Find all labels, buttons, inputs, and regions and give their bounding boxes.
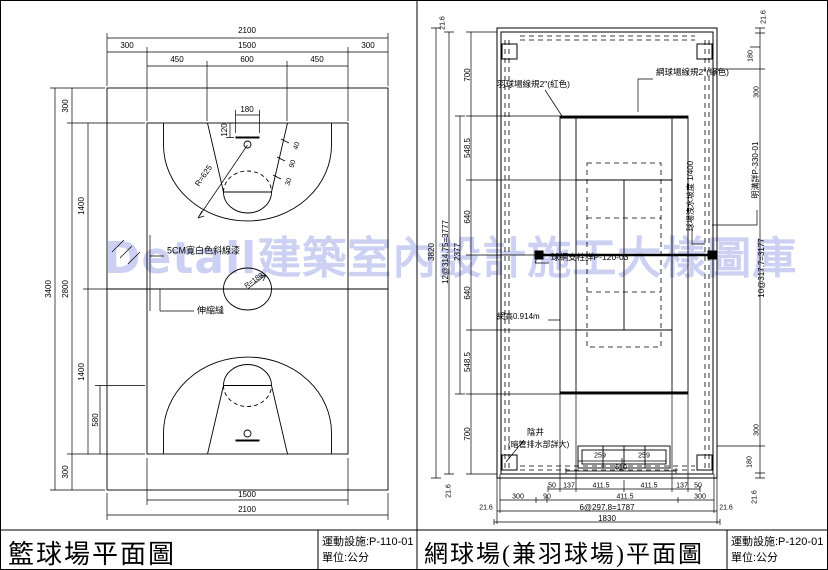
dim-side-top: 300 [754,86,761,98]
dim-margin-right: 300 [361,42,374,50]
label-expansion-joint: 伸縮縫 [197,307,224,316]
label-net-height: 網高0.914m [497,313,540,321]
dim-key-left: 450 [170,56,183,64]
label-gutter-detail: 明溝詳P-330-01 [752,142,760,199]
basketball-dimensions [50,33,388,520]
dim-edge-top-left: 21.6 [440,16,447,30]
sheet-borders [0,0,828,570]
drawing-sheet: Detail建築室內設計施工大樣圖庫 [0,0,828,570]
dim-half-singles-left: 411.5 [593,483,610,490]
dim-edge-top-right: 21.6 [761,10,768,24]
basketball-title: 籃球場平面圖 [8,534,176,570]
tennis-title: 網球場(兼羽球場)平面圖 [424,534,704,569]
dim-court-height: 2800 [62,280,70,298]
dim-side-margin-left: 300 [512,494,524,501]
dim-total-width: 2100 [238,27,256,35]
dim-alley-left: 137 [563,483,575,490]
dim-court-length: 2377 [454,243,462,261]
dim-bottom-court-width: 1500 [238,491,256,499]
dim-badminton-259-right: 259 [638,453,650,460]
dim-side-bottom: 300 [754,424,761,436]
tennis-sheet-number: 運動設施:P-120-01 [731,533,823,549]
dim-backboard: 180 [240,106,253,114]
dim-badminton-610: 610 [615,465,627,472]
dim-half-singles-right: 411.5 [641,483,658,490]
dim-gate-bottom: 180 [747,456,754,468]
dim-service-top: 640 [464,210,472,223]
tennis-unit: 單位:公分 [731,549,778,565]
label-badminton-line: 羽球場線規2"(紅色) [497,80,570,89]
dim-tennis-total-width: 1830 [598,515,616,523]
basketball-unit: 單位:公分 [322,549,369,565]
dim-bottom-run: 6@297.8=1787 [579,504,634,512]
dim-side-margin-right: 300 [694,494,706,501]
dim-gate-top: 180 [748,50,755,62]
dim-edge-bottom-row-right: 21.6 [719,505,733,512]
dim-left-run: 12@314.75=3777 [442,220,450,284]
dim-alley-right: 137 [676,483,688,490]
dim-edge-bottom-right: 21.6 [752,490,759,504]
dim-margin-top: 300 [62,99,70,112]
tennis-dimensions-and-leaders [431,28,765,525]
dim-bottom-total-width: 2100 [238,506,256,514]
dim-backrun-bottom: 700 [464,427,472,440]
dim-post-offset-right: 50 [694,483,702,490]
dim-margin-bottom: 300 [62,465,70,478]
dim-mid-width: 411.5 [617,494,634,501]
dim-service-bottom: 640 [464,286,472,299]
dim-court-width: 1500 [238,42,256,50]
dim-backrun-top: 700 [464,68,472,81]
dim-key-right: 450 [310,56,323,64]
label-net-post-detail: 球網支柱詳P-120-03 [551,253,628,262]
label-tennis-line: 網球場線規2"(綠色) [656,68,729,77]
dim-edge-bottom-row-left: 21.6 [479,505,493,512]
dim-half-bottom: 1400 [78,363,86,381]
dim-edge-bottom-left: 21.6 [446,484,453,498]
dim-freethrow: 580 [92,413,100,426]
dim-badminton-259-left: 259 [594,453,606,460]
dim-tennis-total-height: 3820 [428,243,436,261]
dim-total-height: 3400 [45,280,53,298]
cad-linework [0,0,828,570]
label-catch-pit: 陰井 [527,428,544,437]
label-paint-stripe: 5CM寬白色斜線漆 [167,247,240,256]
dim-margin-left: 300 [120,42,133,50]
label-drainage-slope: 球場洩水坡度 1/400 [687,161,695,231]
dim-ninety: 90 [543,494,551,501]
basketball-sheet-number: 運動設施:P-110-01 [322,533,414,549]
dim-right-run: 10@317.7=3177 [758,238,766,298]
dim-backboard-offset: 120 [221,123,229,136]
dim-half-top: 1400 [78,197,86,215]
dim-key-width: 600 [240,56,253,64]
dim-baseline-bottom: 548.5 [464,352,472,372]
label-catch-pit-note: (暗管排水部詳大) [508,441,569,449]
dim-baseline-top: 548.5 [464,138,472,158]
dim-post-offset-left: 50 [548,483,556,490]
